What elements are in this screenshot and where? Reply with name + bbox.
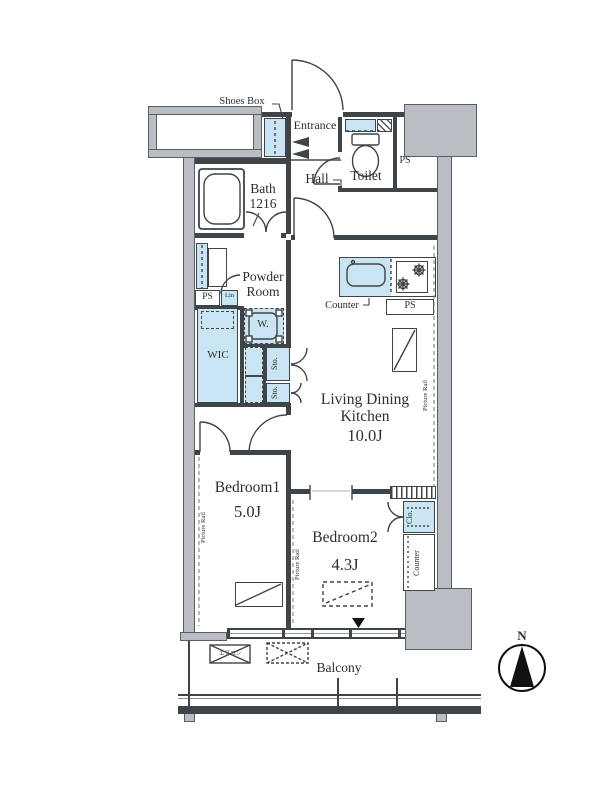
storage-upper-door-arc-2 xyxy=(291,365,307,381)
ac-unit-label: エアコン xyxy=(212,649,248,659)
compass-north-arrow-icon xyxy=(510,646,534,687)
closet-label: Clo. xyxy=(405,503,418,531)
stove-burner-1 xyxy=(413,264,426,277)
toilet-tank xyxy=(352,134,379,145)
entrance-doorstop-icon-1 xyxy=(292,137,309,147)
linen-label: Lin xyxy=(221,292,238,303)
bed-diagonal xyxy=(236,584,281,605)
washer-corner-3 xyxy=(246,336,252,342)
washer-corner-2 xyxy=(276,310,282,316)
stove-burner-2 xyxy=(397,278,410,291)
powder-room-label-1: Powder xyxy=(234,269,292,284)
compass-north-label: N xyxy=(512,628,532,642)
bedroom1-door-arc xyxy=(200,422,230,452)
balcony-label: Balcony xyxy=(310,660,368,675)
entrance-door-arc xyxy=(292,60,343,110)
storage-upper-door-arc-1 xyxy=(291,348,307,364)
powder-room-label-2: Room xyxy=(234,284,292,299)
storage-upper-label: Sto. xyxy=(270,350,286,378)
bedroom1-label: Bedroom1 xyxy=(200,479,295,496)
compass xyxy=(499,645,545,691)
bath-door-arc-right xyxy=(266,212,286,232)
bedroom1-size-label: 5.0J xyxy=(200,502,295,520)
bathtub-inner xyxy=(204,174,240,224)
corridor-ldk-door-arc xyxy=(249,415,287,453)
ps-powder-label: PS xyxy=(195,292,220,304)
hall-label: Hall xyxy=(300,171,334,186)
shoes-box-label: Shoes Box xyxy=(214,96,270,108)
bedroom2-label: Bedroom2 xyxy=(300,529,390,546)
ps-toilet-label: PS xyxy=(394,155,416,168)
floor-plan: Shoes Box Entrance Toilet PS Hall Bath 1… xyxy=(0,0,600,800)
refrigerator-diagonal xyxy=(394,330,415,370)
kitchen-faucet xyxy=(352,261,355,264)
kitchen-sink xyxy=(347,264,385,286)
storage-lower-label: Sto. xyxy=(270,384,286,402)
washer-corner-1 xyxy=(246,310,252,316)
ldk-label-2: Kitchen xyxy=(300,408,430,425)
counter-bedroom2-label: Counter xyxy=(412,537,426,589)
counter-kitchen-label: Counter xyxy=(318,300,366,313)
picture-rail-bedroom1-label: Picture Rail xyxy=(200,498,210,558)
toilet-label: Toilet xyxy=(340,168,392,183)
bath-door-arc-left xyxy=(246,212,266,232)
hall-ldk-door-arc xyxy=(294,198,334,238)
bath-size-label: 1216 xyxy=(240,196,286,211)
picture-rail-bedroom2-label: Picture Rail xyxy=(294,535,304,595)
ps-kitchen-label: PS xyxy=(386,300,434,313)
closet-door-arc-2 xyxy=(388,517,403,532)
entrance-doorstop-icon-2 xyxy=(292,149,309,159)
entrance-label: Entrance xyxy=(289,118,341,131)
shoes-box-pointer xyxy=(272,104,283,119)
closet-door-arc-1 xyxy=(388,502,403,517)
bedroom2-size-label: 4.3J xyxy=(300,555,390,573)
ldk-label-1: Living Dining xyxy=(300,391,430,408)
bath-label: Bath xyxy=(240,181,286,196)
ldk-size-label: 10.0J xyxy=(300,426,430,444)
washer-label: W. xyxy=(251,319,275,332)
bedroom2-dashed-diagonal xyxy=(326,585,369,603)
washer-corner-4 xyxy=(276,336,282,342)
entry-triangle-marker xyxy=(352,618,365,628)
wic-label: WIC xyxy=(200,349,236,363)
picture-rail-ldk-label: Picture Rail xyxy=(422,364,433,428)
